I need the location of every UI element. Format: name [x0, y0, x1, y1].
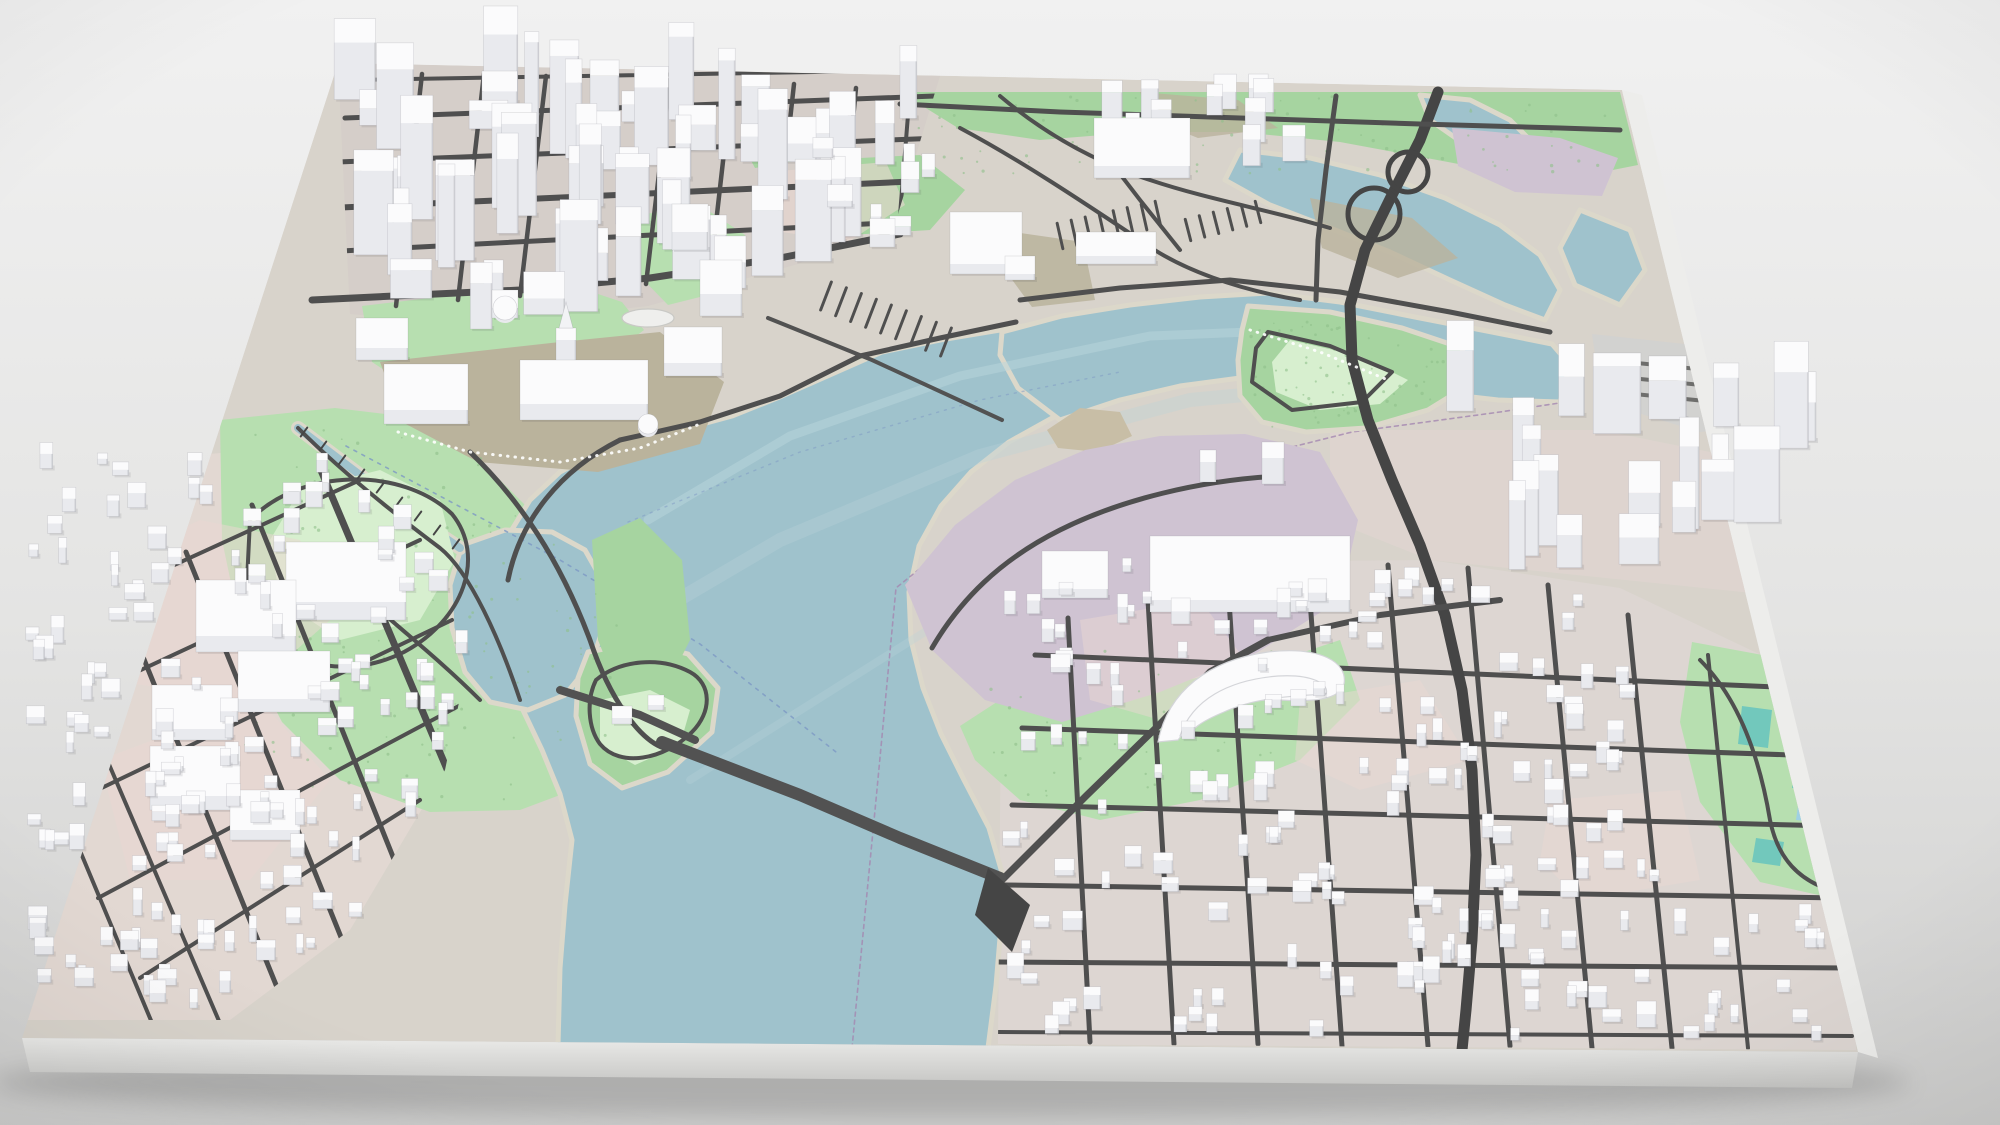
building — [719, 48, 738, 161]
building — [107, 495, 121, 518]
building — [371, 607, 388, 625]
building — [1560, 880, 1580, 899]
building — [1182, 721, 1197, 741]
building — [1714, 363, 1741, 428]
building — [1533, 658, 1547, 678]
building — [1493, 826, 1514, 846]
building — [274, 535, 287, 553]
building — [1457, 944, 1472, 968]
building — [1208, 902, 1229, 922]
building — [151, 903, 164, 922]
building — [1672, 481, 1697, 534]
chateau — [700, 260, 744, 318]
building — [1714, 937, 1731, 957]
building — [1513, 761, 1532, 783]
building — [1045, 1015, 1061, 1035]
east-block — [664, 327, 724, 378]
building — [273, 613, 285, 639]
building — [226, 784, 242, 808]
building — [358, 490, 372, 514]
building — [33, 639, 46, 661]
building — [400, 577, 417, 593]
building — [1398, 579, 1414, 599]
building — [1423, 956, 1442, 985]
building — [349, 903, 364, 919]
building — [1118, 734, 1130, 751]
building — [1586, 823, 1603, 843]
building — [1027, 594, 1043, 616]
building — [1203, 781, 1220, 803]
building — [1283, 125, 1308, 163]
building — [1291, 689, 1308, 708]
building — [1369, 592, 1387, 608]
building — [1485, 868, 1506, 889]
building — [1171, 598, 1192, 626]
building — [168, 548, 184, 566]
building — [1420, 697, 1436, 716]
building — [1433, 718, 1445, 742]
building — [390, 259, 434, 301]
building — [420, 685, 436, 711]
building — [1553, 805, 1570, 828]
building — [220, 748, 232, 767]
building — [1034, 916, 1052, 930]
building — [1545, 779, 1566, 806]
building — [1559, 344, 1587, 418]
building — [322, 623, 341, 644]
museum-tower-2 — [1262, 442, 1286, 486]
building — [1051, 654, 1073, 674]
building — [284, 508, 302, 535]
building — [1521, 970, 1541, 989]
building — [1319, 862, 1332, 881]
building — [109, 607, 129, 621]
building — [1649, 356, 1689, 421]
building — [1530, 953, 1546, 966]
war-museum-annex — [1005, 256, 1037, 282]
building — [338, 706, 356, 729]
building — [1296, 601, 1309, 613]
building — [1055, 624, 1067, 640]
building — [378, 549, 394, 561]
building — [1340, 976, 1355, 997]
building — [1380, 698, 1393, 714]
building — [1248, 878, 1269, 896]
building — [497, 133, 520, 235]
building — [26, 706, 46, 726]
nrc-slab — [1094, 118, 1192, 180]
building — [380, 699, 391, 717]
building — [1471, 586, 1492, 605]
building — [148, 526, 168, 551]
building — [264, 775, 279, 790]
centre-block — [520, 360, 650, 422]
building — [1214, 620, 1231, 636]
building — [1749, 914, 1760, 935]
building — [1392, 775, 1409, 793]
building — [188, 453, 204, 478]
building — [1206, 1013, 1219, 1034]
building — [1042, 619, 1057, 644]
building — [560, 199, 600, 313]
building — [1561, 930, 1578, 950]
building — [286, 907, 302, 925]
building — [1277, 588, 1293, 619]
building — [1412, 927, 1427, 950]
building — [827, 185, 854, 209]
building — [112, 462, 130, 477]
building — [1500, 653, 1520, 673]
building — [1358, 611, 1379, 624]
building — [1573, 594, 1584, 608]
building — [134, 603, 156, 623]
building — [406, 692, 420, 709]
building — [62, 487, 78, 513]
building — [200, 485, 215, 506]
building — [1467, 746, 1479, 763]
building — [1004, 591, 1018, 617]
building — [1162, 877, 1181, 894]
circular-plaza — [622, 309, 674, 327]
building — [1525, 989, 1541, 1012]
museum-annex-west — [1042, 551, 1110, 600]
building — [524, 272, 567, 317]
building — [1704, 1014, 1717, 1033]
building — [1415, 980, 1427, 995]
building — [1238, 705, 1255, 731]
building — [141, 938, 160, 960]
building — [167, 844, 185, 864]
building — [1125, 846, 1144, 869]
building — [1581, 664, 1595, 691]
building — [1293, 880, 1314, 904]
building — [1441, 579, 1455, 593]
building — [235, 568, 248, 596]
field-3 — [1752, 838, 1784, 866]
building — [1481, 914, 1494, 931]
building — [1087, 663, 1103, 686]
building — [1635, 969, 1651, 984]
building — [37, 969, 53, 985]
building — [1417, 724, 1429, 748]
building — [429, 570, 450, 593]
building — [1684, 1026, 1702, 1040]
building — [256, 940, 277, 962]
building — [1566, 704, 1585, 731]
building — [1538, 858, 1558, 872]
building — [795, 159, 833, 263]
building — [82, 674, 95, 702]
building — [74, 967, 95, 988]
west-block — [384, 364, 470, 426]
building — [1447, 321, 1476, 414]
building — [1051, 724, 1064, 746]
building — [28, 814, 43, 827]
building — [1637, 1001, 1659, 1029]
building — [40, 442, 55, 470]
building — [145, 771, 158, 798]
building — [1593, 353, 1643, 436]
building — [316, 453, 329, 474]
building — [616, 207, 643, 298]
building — [245, 737, 266, 754]
building — [1063, 911, 1085, 932]
building — [101, 678, 122, 699]
building — [1112, 685, 1126, 708]
building — [270, 803, 285, 820]
building — [94, 726, 111, 739]
building — [405, 792, 418, 819]
building — [151, 563, 171, 585]
building — [110, 954, 129, 973]
building — [1189, 1006, 1204, 1023]
building — [1083, 987, 1102, 1012]
building — [101, 927, 115, 947]
building — [1059, 582, 1075, 597]
building — [1500, 924, 1517, 949]
building — [470, 262, 494, 331]
building — [1650, 869, 1661, 883]
building — [1792, 1009, 1809, 1024]
building — [1547, 685, 1566, 704]
building — [1620, 685, 1637, 700]
building — [97, 453, 109, 466]
building — [1387, 791, 1401, 818]
building — [456, 630, 470, 655]
building — [182, 795, 202, 815]
building — [124, 584, 146, 602]
building — [1310, 1020, 1326, 1039]
building — [74, 714, 90, 734]
building — [1055, 859, 1077, 878]
farm-complex-3 — [238, 651, 332, 714]
building — [318, 718, 338, 737]
library-rotunda — [638, 414, 658, 437]
building — [29, 544, 40, 559]
building — [1567, 986, 1578, 1009]
building — [1320, 962, 1334, 981]
building — [243, 508, 263, 527]
building — [225, 931, 237, 953]
building — [1207, 84, 1225, 117]
building — [758, 89, 790, 202]
building — [900, 46, 919, 121]
building — [290, 834, 306, 859]
building — [1212, 988, 1226, 1007]
building — [1602, 1009, 1623, 1024]
building — [1570, 764, 1589, 779]
building — [69, 824, 86, 852]
building — [901, 162, 921, 195]
building — [870, 219, 897, 250]
building — [1254, 619, 1269, 636]
building — [1117, 594, 1129, 625]
building — [752, 186, 785, 278]
ne-low-slab — [1076, 232, 1158, 266]
building — [1332, 891, 1346, 906]
building — [66, 954, 78, 969]
building — [73, 783, 87, 808]
building — [1021, 732, 1038, 753]
building — [1308, 579, 1329, 603]
building — [260, 872, 275, 891]
building — [1429, 768, 1449, 786]
building — [307, 806, 319, 825]
building — [283, 483, 303, 507]
building — [306, 482, 325, 510]
building — [283, 865, 303, 887]
building — [875, 101, 896, 167]
building — [261, 582, 273, 611]
confederation-building — [356, 318, 410, 362]
building — [120, 931, 140, 952]
building — [1588, 986, 1609, 1010]
building — [1174, 1016, 1189, 1034]
building — [313, 892, 335, 910]
building — [198, 934, 216, 951]
building — [166, 804, 182, 829]
building — [1619, 514, 1661, 567]
scene — [0, 0, 2000, 1125]
building — [365, 769, 380, 783]
building — [1576, 857, 1590, 881]
building — [1503, 888, 1520, 911]
building — [1607, 720, 1625, 744]
building — [1616, 666, 1631, 686]
building — [48, 516, 65, 536]
building — [205, 845, 217, 860]
building — [1674, 908, 1688, 936]
building — [1604, 850, 1625, 870]
building — [128, 482, 148, 509]
building — [1557, 515, 1584, 570]
building — [35, 937, 56, 956]
building — [420, 663, 435, 683]
map-render-canvas — [0, 0, 2000, 1125]
building — [1313, 681, 1327, 697]
building — [438, 164, 457, 270]
building — [45, 830, 56, 852]
building — [251, 801, 272, 824]
building — [321, 682, 342, 703]
building — [132, 856, 148, 873]
building — [1367, 632, 1384, 650]
building — [922, 154, 937, 179]
building — [1607, 810, 1624, 833]
building — [1811, 1025, 1823, 1042]
building — [1289, 582, 1304, 598]
building — [432, 732, 446, 752]
building — [334, 19, 377, 102]
building — [1254, 773, 1269, 803]
national-gallery — [672, 204, 710, 252]
building — [1777, 979, 1792, 994]
building — [1003, 831, 1022, 848]
building — [1509, 480, 1527, 571]
dome-hall — [493, 296, 517, 323]
building — [1397, 962, 1415, 989]
island-shed-1 — [612, 706, 634, 726]
building — [161, 731, 175, 751]
museum-tower-1 — [1200, 450, 1218, 484]
building — [1021, 973, 1040, 986]
building — [393, 505, 413, 532]
building — [1562, 612, 1576, 631]
building — [1734, 426, 1782, 524]
building — [161, 659, 182, 680]
building — [1153, 852, 1175, 875]
building — [813, 137, 835, 159]
building — [1805, 928, 1819, 949]
island-shed-2 — [648, 695, 666, 712]
building — [1607, 749, 1621, 772]
building — [297, 605, 317, 621]
building — [1320, 626, 1333, 644]
building — [149, 980, 167, 1004]
building — [219, 971, 232, 995]
building — [1423, 587, 1436, 606]
building — [1243, 125, 1263, 168]
